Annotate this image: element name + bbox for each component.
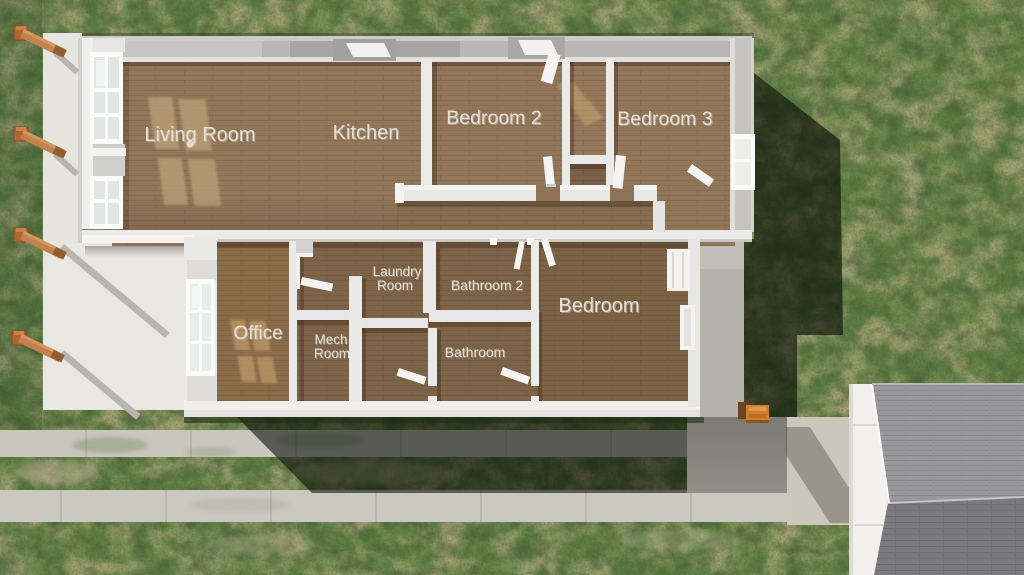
svg-text:Living Room: Living Room [144,124,255,146]
svg-text:Office: Office [233,323,282,344]
svg-text:Laundry: Laundry [373,264,422,279]
svg-text:Bedroom 3: Bedroom 3 [617,108,712,130]
svg-text:Kitchen: Kitchen [333,122,400,144]
svg-text:Bedroom: Bedroom [558,295,639,317]
svg-text:Room: Room [377,278,413,293]
svg-text:Bathroom 2: Bathroom 2 [451,277,524,293]
svg-text:Room: Room [314,346,350,361]
svg-text:Bathroom: Bathroom [445,344,506,360]
svg-text:Bedroom 2: Bedroom 2 [446,107,541,129]
svg-text:Mech: Mech [314,332,347,347]
